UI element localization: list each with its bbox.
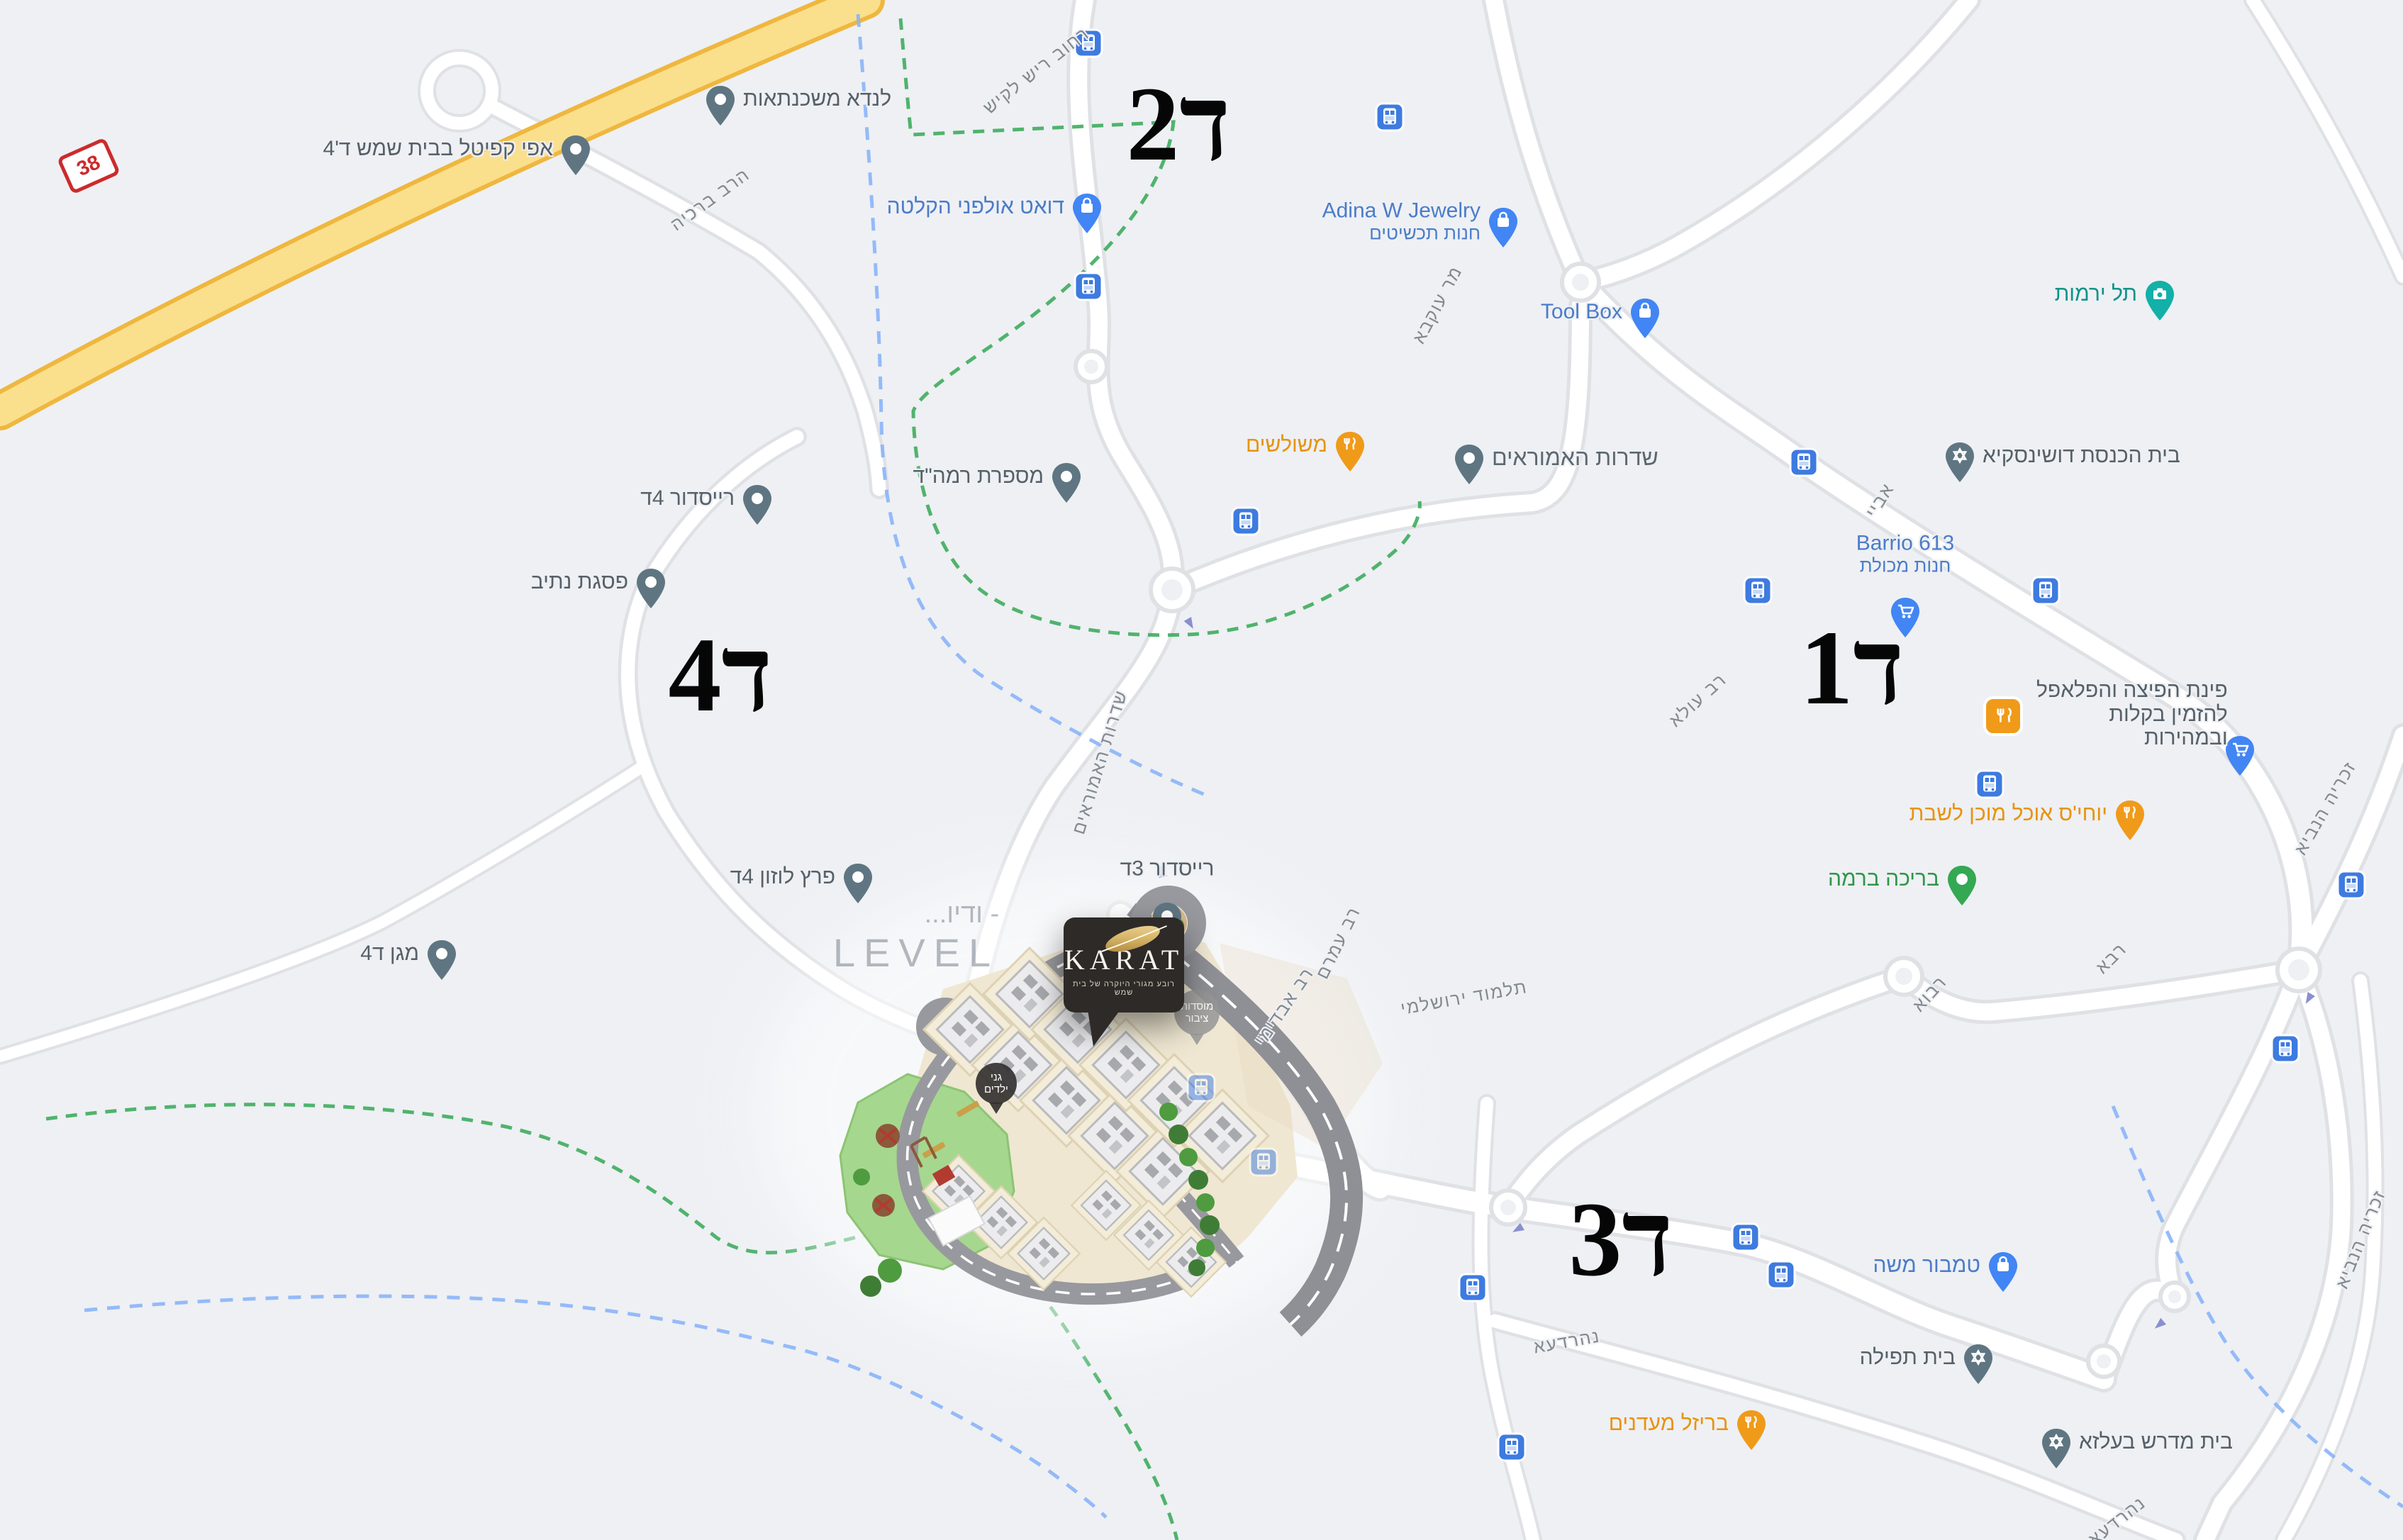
poi-gray-8-label[interactable]: מגן ד4	[360, 942, 419, 966]
poi-blue-1-pin[interactable]	[1487, 206, 1520, 252]
district-number-label-2: 1ד	[1800, 615, 1904, 721]
street-label-7: רב אבדימי	[1251, 964, 1319, 1049]
poi-orange-0-pin[interactable]	[1334, 430, 1366, 476]
poi-orange-2-pin[interactable]	[1735, 1409, 1768, 1455]
street-label-1: הרב ברכיה	[667, 164, 754, 235]
poi-gray-4-pin[interactable]	[1050, 462, 1083, 508]
bus-stop-icon-1[interactable]	[1373, 101, 1406, 137]
poi-pool-pin[interactable]	[1946, 864, 1978, 910]
poi-gray-6-pin[interactable]	[1944, 441, 1976, 487]
bus-stop-icon-13[interactable]	[1495, 1431, 1528, 1467]
poi-gray-9-label[interactable]: רייסדור 3ד	[1120, 857, 1215, 881]
street-label-11: זכריה הנביא	[2291, 758, 2361, 859]
street-label-12: זכריה הנביא	[2332, 1187, 2390, 1292]
poi-gray-11-pin[interactable]	[2040, 1427, 2073, 1473]
poi-pizza-corner-icon[interactable]	[1983, 696, 2024, 740]
street-label-2: מר עוקבא	[1409, 262, 1467, 347]
street-label-10: רבא	[2092, 939, 2131, 978]
bus-stop-icon-7[interactable]	[1973, 768, 2006, 804]
bus-stop-icon-12[interactable]	[1456, 1271, 1489, 1307]
poi-orange-1-pin[interactable]	[2114, 799, 2146, 845]
bus-stop-icon-8[interactable]	[2335, 869, 2368, 905]
bus-stop-icon-f1[interactable]	[1247, 1146, 1280, 1182]
poi-blue-0-pin[interactable]	[1071, 192, 1103, 238]
poi-blue-3-label[interactable]: Barrio 613חנות מכולת	[1856, 531, 1954, 576]
bus-stop-icon-9[interactable]	[2269, 1032, 2302, 1068]
street-label-13: נהרדעא	[1532, 1326, 1602, 1358]
karat-leaf-icon	[1095, 923, 1169, 954]
bus-stop-icon-11[interactable]	[1765, 1259, 1797, 1295]
poi-gray-1-pin[interactable]	[559, 134, 592, 180]
poi-pizza-corner-label[interactable]: פינת הפיצה והפלאפללהזמין בקלותובמהירות	[2036, 679, 2228, 750]
poi-gray-7-label[interactable]: פרץ לוזון 4ד	[730, 865, 835, 889]
street-label-5: שדרות האמוראים	[1069, 688, 1132, 837]
poi-blue-5-pin[interactable]	[2224, 735, 2256, 781]
district-number-label-0: 2ד	[1126, 71, 1230, 177]
bus-stop-icon-6[interactable]	[2029, 574, 2062, 610]
poi-gray-3-pin[interactable]	[635, 567, 667, 613]
bus-stop-icon-3[interactable]	[1230, 505, 1262, 541]
poi-blue-0-label[interactable]: דואט אולפני הקלטה	[887, 195, 1064, 219]
bus-stop-icon-4[interactable]	[1788, 446, 1820, 482]
markers-layer: לנדא משכנתאותאפי קפיטל בבית שמש ד'4רייסד…	[0, 0, 2403, 1540]
poi-gray-8-pin[interactable]	[425, 939, 458, 985]
bus-stop-icon-5[interactable]	[1741, 574, 1774, 610]
poi-orange-0-label[interactable]: משולשים	[1246, 433, 1327, 457]
poi-gray-10-label[interactable]: בית תפילה	[1860, 1346, 1956, 1370]
poi-gray-2-pin[interactable]	[741, 484, 774, 530]
street-label-8: תלמוד ירושלמי	[1399, 977, 1529, 1020]
street-label-4: רב עולא	[1666, 669, 1732, 731]
bus-stop-icon-2[interactable]	[1072, 270, 1105, 306]
poi-orange-2-label[interactable]: בריזל מעדנים	[1609, 1412, 1729, 1436]
poi-orange-1-label[interactable]: יוחי'ס אוכל מוכן לשבת	[1909, 802, 2107, 826]
poi-blue-2-pin[interactable]	[1629, 297, 1661, 343]
map-canvas[interactable]: 38 ...ודיו - LEVEL KARAT רובע מגורי היוק…	[0, 0, 2403, 1540]
poi-gray-4-label[interactable]: מספרת רמה"ד	[913, 464, 1044, 489]
poi-gray-10-pin[interactable]	[1962, 1343, 1995, 1389]
bus-stop-icon-f0[interactable]	[1185, 1071, 1217, 1107]
poi-blue-4-pin[interactable]	[1987, 1251, 2019, 1297]
poi-tel-yarmut-pin[interactable]	[2143, 279, 2176, 325]
poi-pool-label[interactable]: בריכה ברמה	[1828, 867, 1939, 891]
poi-gray-5-label[interactable]: שדרות האמוראים	[1492, 445, 1658, 471]
karat-logo-tagline: רובע מגורי היוקרה של בית שמש	[1064, 980, 1184, 997]
site-bubble-0[interactable]: גניילדים	[976, 1063, 1017, 1104]
poi-gray-3-label[interactable]: פסגת נתיב	[531, 570, 628, 594]
karat-bubble-tail	[1083, 1010, 1126, 1049]
poi-gray-5-pin[interactable]	[1453, 443, 1485, 489]
bus-stop-icon-10[interactable]	[1729, 1221, 1762, 1257]
street-label-0: רחוב ריש לקיש	[980, 23, 1093, 118]
district-number-label-1: 4ד	[668, 622, 772, 728]
poi-blue-2-label[interactable]: Tool Box	[1541, 300, 1622, 324]
district-number-label-3: 3ד	[1568, 1186, 1673, 1293]
poi-gray-0-pin[interactable]	[704, 84, 737, 130]
poi-gray-2-label[interactable]: רייסדור 4ד	[640, 486, 735, 510]
poi-gray-1-label[interactable]: אפי קפיטל בבית שמש ד'4	[323, 137, 554, 161]
poi-blue-4-label[interactable]: טמבור משה	[1873, 1254, 1980, 1278]
street-label-9: רבוא	[1909, 972, 1951, 1016]
poi-gray-11-label[interactable]: בית מדרש בעלזא	[2079, 1430, 2233, 1454]
street-label-3: אביי	[1862, 479, 1899, 521]
poi-gray-6-label[interactable]: בית הכנסת דושינסקיא	[1983, 444, 2180, 468]
poi-gray-0-label[interactable]: לנדא משכנתאות	[743, 87, 891, 111]
street-label-6: רב עמרם	[1312, 903, 1365, 982]
poi-blue-1-label[interactable]: Adina W Jewelryחנות תכשיטים	[1322, 199, 1481, 244]
karat-logo-bubble[interactable]: KARAT רובע מגורי היוקרה של בית שמש	[1064, 917, 1184, 1012]
poi-tel-yarmut-label[interactable]: תל ירמות	[2055, 282, 2137, 306]
poi-gray-7-pin[interactable]	[842, 862, 874, 908]
street-label-14: נהרדעא	[2085, 1492, 2151, 1540]
